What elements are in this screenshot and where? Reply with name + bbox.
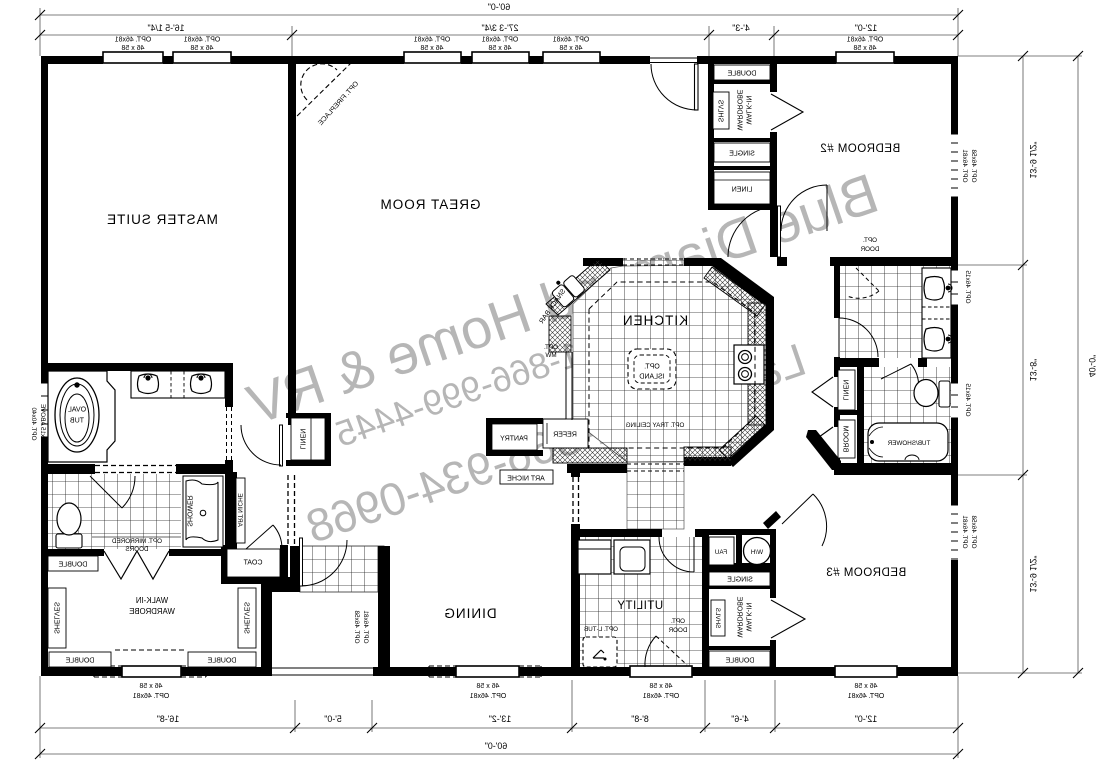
svg-text:OPT. 46x81: OPT. 46x81 [115,37,152,44]
svg-text:OPT. 40x40: OPT. 40x40 [30,407,37,440]
svg-text:OPT. 46x81: OPT. 46x81 [961,515,968,548]
svg-text:ART NICHE: ART NICHE [236,493,243,527]
svg-text:DOORS: DOORS [125,546,148,553]
svg-text:12'-0": 12'-0" [855,714,877,724]
svg-text:TUB: TUB [70,418,84,425]
svg-text:COAT: COAT [243,560,263,567]
svg-text:REFER: REFER [553,432,577,439]
svg-text:46 x 58: 46 x 58 [853,45,876,52]
svg-text:DINING: DINING [443,606,496,621]
svg-text:MW: MW [545,352,556,359]
svg-text:SHOWER: SHOWER [186,495,193,527]
svg-text:DOUBLE: DOUBLE [725,658,754,665]
svg-text:DOOR: DOOR [668,627,687,634]
svg-text:13'-9 1/2": 13'-9 1/2" [1028,141,1038,178]
svg-text:46 x 58: 46 x 58 [139,683,162,690]
svg-text:SINGLE: SINGLE [727,577,753,584]
svg-text:SHELVES: SHELVES [243,602,250,634]
svg-text:BEDROOM #3: BEDROOM #3 [826,567,906,579]
svg-text:46 x 58: 46 x 58 [488,45,511,52]
svg-text:OPT. TRAY CEILING: OPT. TRAY CEILING [626,422,685,429]
svg-text:SHVLS: SHVLS [714,608,721,629]
svg-text:46 x 58: 46 x 58 [121,45,144,52]
svg-text:SHELVES: SHELVES [53,602,60,634]
svg-text:OPT. 46x81: OPT. 46x81 [848,693,885,700]
svg-text:SHLVS: SHLVS [717,99,724,122]
svg-text:4'-6": 4'-6" [731,714,749,724]
svg-text:LINEN: LINEN [732,187,753,194]
svg-text:60'-0": 60'-0" [485,741,507,751]
svg-text:ART NICHE: ART NICHE [507,476,545,483]
svg-text:13'-9 1/2": 13'-9 1/2" [1028,555,1038,592]
svg-text:DOUBLE: DOUBLE [58,562,87,569]
svg-text:LINEN: LINEN [842,380,849,401]
svg-text:ISLAND: ISLAND [639,374,664,381]
svg-text:MASTER SUITE: MASTER SUITE [106,212,218,227]
svg-text:WARDROBE: WARDROBE [736,89,743,130]
svg-text:OPT.: OPT. [644,364,660,371]
svg-text:WALK-IN: WALK-IN [136,596,168,605]
svg-text:SINGLE: SINGLE [729,151,755,158]
svg-text:13'-2": 13'-2" [489,714,511,724]
svg-text:OPT. 46x81: OPT. 46x81 [482,37,519,44]
svg-text:8'-8": 8'-8" [631,714,649,724]
svg-text:46 x 58: 46 x 58 [854,683,877,690]
svg-text:DOUBLE: DOUBLE [727,71,756,78]
svg-text:FAU: FAU [714,549,727,556]
svg-text:WARDROBE: WARDROBE [736,596,743,637]
svg-text:40'-0": 40'-0" [1087,355,1097,377]
svg-text:OPT. 46x58: OPT. 46x58 [970,515,977,548]
svg-text:OPT. 46x81: OPT. 46x81 [553,37,590,44]
svg-text:OPT. 46x58: OPT. 46x58 [353,610,360,643]
svg-text:KITCHEN: KITCHEN [622,313,688,328]
svg-text:BEDROOM #2: BEDROOM #2 [820,143,900,155]
svg-text:OVAL: OVAL [68,407,86,414]
svg-text:12'-0": 12'-0" [855,23,877,33]
svg-text:OPT. MIRRORED: OPT. MIRRORED [112,538,162,545]
svg-text:16'-8": 16'-8" [157,714,179,724]
svg-text:OPT. 46x81: OPT. 46x81 [414,37,451,44]
svg-text:OPT. 46x15: OPT. 46x15 [964,383,971,416]
svg-text:BROOM: BROOM [842,426,849,453]
svg-text:16'-5 1/4": 16'-5 1/4" [147,23,184,33]
svg-text:27'-3 3/4": 27'-3 3/4" [481,23,518,33]
svg-text:46 x 58: 46 x 58 [420,45,443,52]
svg-text:DOOR: DOOR [860,246,879,253]
svg-text:46 x 58: 46 x 58 [476,683,499,690]
svg-text:60'-0": 60'-0" [488,2,510,12]
svg-text:WARDROBE: WARDROBE [129,607,175,616]
svg-text:OPT. 46x58: OPT. 46x58 [970,149,977,182]
svg-text:46x15 ABOVE: 46x15 ABOVE [39,404,46,444]
svg-text:TUB/SHOWER: TUB/SHOWER [887,440,930,447]
svg-text:46 x 58: 46 x 58 [649,683,672,690]
svg-text:OPT. 46x81: OPT. 46x81 [362,610,369,643]
svg-text:WALK-IN: WALK-IN [745,96,752,125]
svg-text:46 x 58: 46 x 58 [190,45,213,52]
svg-text:WALK-IN: WALK-IN [745,603,752,632]
svg-text:OPT.: OPT. [544,344,558,351]
svg-text:PANTRY: PANTRY [500,436,528,443]
svg-text:DOUBLE: DOUBLE [65,658,94,665]
svg-text:46 x 58: 46 x 58 [559,45,582,52]
svg-text:OPT. 46x15: OPT. 46x15 [964,270,971,303]
svg-text:LINEN: LINEN [299,429,306,450]
svg-text:13'-8": 13'-8" [1028,359,1038,381]
svg-text:OPT. 46x81: OPT. 46x81 [961,149,968,182]
svg-text:5'-0": 5'-0" [324,714,342,724]
svg-text:OPT.: OPT. [671,618,685,625]
svg-text:DOUBLE: DOUBLE [207,658,236,665]
svg-text:UTILITY: UTILITY [617,600,663,612]
svg-text:OPT. 46x81: OPT. 46x81 [133,693,170,700]
svg-text:OPT.: OPT. [863,237,877,244]
svg-text:GREAT ROOM: GREAT ROOM [379,197,480,212]
svg-text:OPT. 46x81: OPT. 46x81 [643,693,680,700]
svg-text:OPT. 46x81: OPT. 46x81 [470,693,507,700]
svg-text:OPT. 46x81: OPT. 46x81 [184,37,221,44]
svg-text:4'-3": 4'-3" [732,23,750,33]
svg-text:OPT. L-TUB: OPT. L-TUB [584,626,618,633]
svg-text:OPT. 46x81: OPT. 46x81 [847,37,884,44]
svg-text:W/H: W/H [750,549,763,556]
